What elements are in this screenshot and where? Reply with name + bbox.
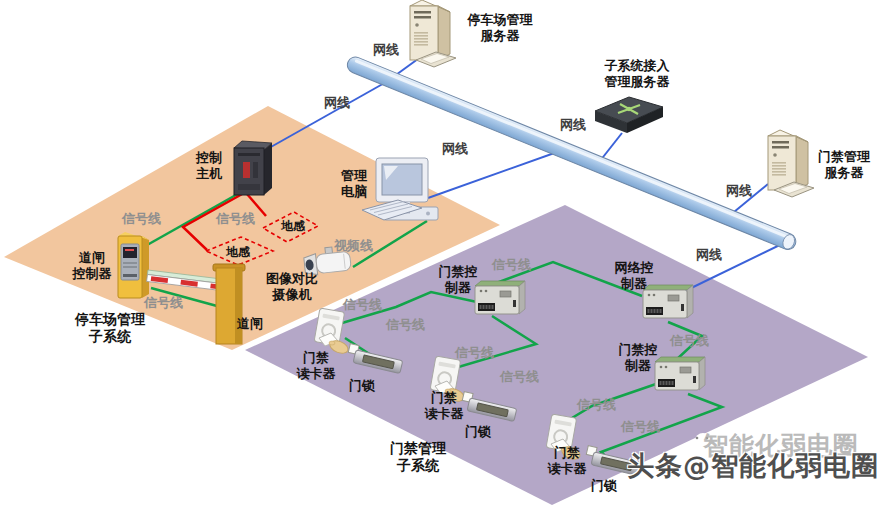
- ground-loop-1-label: 地感: [281, 218, 305, 235]
- barrier-controller-icon: [118, 232, 149, 298]
- barrier-controller-label: 道闸 控制器: [66, 250, 118, 282]
- camera-label: 图像对比 摄像机: [260, 271, 324, 303]
- network-cable-label: 网线: [726, 182, 752, 200]
- network-cable-line: [428, 151, 560, 198]
- signal-cable-label: 信号线: [492, 256, 531, 274]
- network-controller-label: 网络控 制器: [606, 260, 662, 292]
- access-controller-1-label: 门禁控 制器: [430, 264, 486, 296]
- parking-server-label: 停车场管理 服务器: [458, 12, 542, 44]
- door-lock-3-label: 门锁: [586, 478, 622, 494]
- watermark-text: 头条@智能化弱电圈: [627, 448, 879, 484]
- subsystem-server-icon: [595, 97, 663, 133]
- door-lock-1-label: 门锁: [344, 378, 380, 394]
- network-cable-label: 网线: [560, 116, 586, 134]
- access-server-label: 门禁管理 服务器: [808, 149, 880, 181]
- barrier-gate-label: 道闸: [232, 316, 268, 332]
- topology-diagram: 停车场管理 服务器 子系统接入 管理服务器 门禁管理 服务器 控制 主机 管理 …: [0, 0, 881, 505]
- subsystem-server-label: 子系统接入 管理服务器: [590, 58, 684, 90]
- signal-cable-label: 信号线: [122, 210, 161, 228]
- signal-cable-label: 信号线: [577, 396, 616, 414]
- video-cable-label: 视频线: [334, 237, 373, 255]
- card-reader-3-label: 门禁 读卡器: [536, 445, 598, 477]
- parking-server-icon: [410, 0, 456, 67]
- signal-cable-label: 信号线: [500, 368, 539, 386]
- network-cable-label: 网线: [442, 140, 468, 158]
- ground-loop-2-label: 地感: [226, 244, 250, 261]
- signal-cable-label: 信号线: [670, 332, 709, 350]
- network-cable-label: 网线: [324, 94, 350, 112]
- signal-cable-label: 信号线: [621, 418, 660, 436]
- signal-cable-label: 信号线: [216, 210, 255, 228]
- network-cable-label: 网线: [696, 246, 722, 264]
- signal-cable-label: 信号线: [455, 344, 494, 362]
- network-cable-label: 网线: [373, 41, 399, 59]
- access-controller-2-label: 门禁控 制器: [610, 342, 666, 374]
- control-host-icon: [234, 141, 272, 195]
- management-pc-label: 管理 电脑: [334, 168, 374, 200]
- control-host-label: 控制 主机: [188, 150, 230, 182]
- parking-subsystem-label: 停车场管理 子系统: [50, 311, 170, 345]
- signal-cable-label: 信号线: [144, 294, 183, 312]
- door-lock-2-label: 门锁: [460, 424, 496, 440]
- access-subsystem-label: 门禁管理 子系统: [376, 440, 460, 474]
- signal-cable-label: 信号线: [343, 296, 382, 314]
- signal-cable-label: 信号线: [386, 316, 425, 334]
- card-reader-1-label: 门禁 读卡器: [285, 350, 347, 382]
- card-reader-2-label: 门禁 读卡器: [413, 390, 475, 422]
